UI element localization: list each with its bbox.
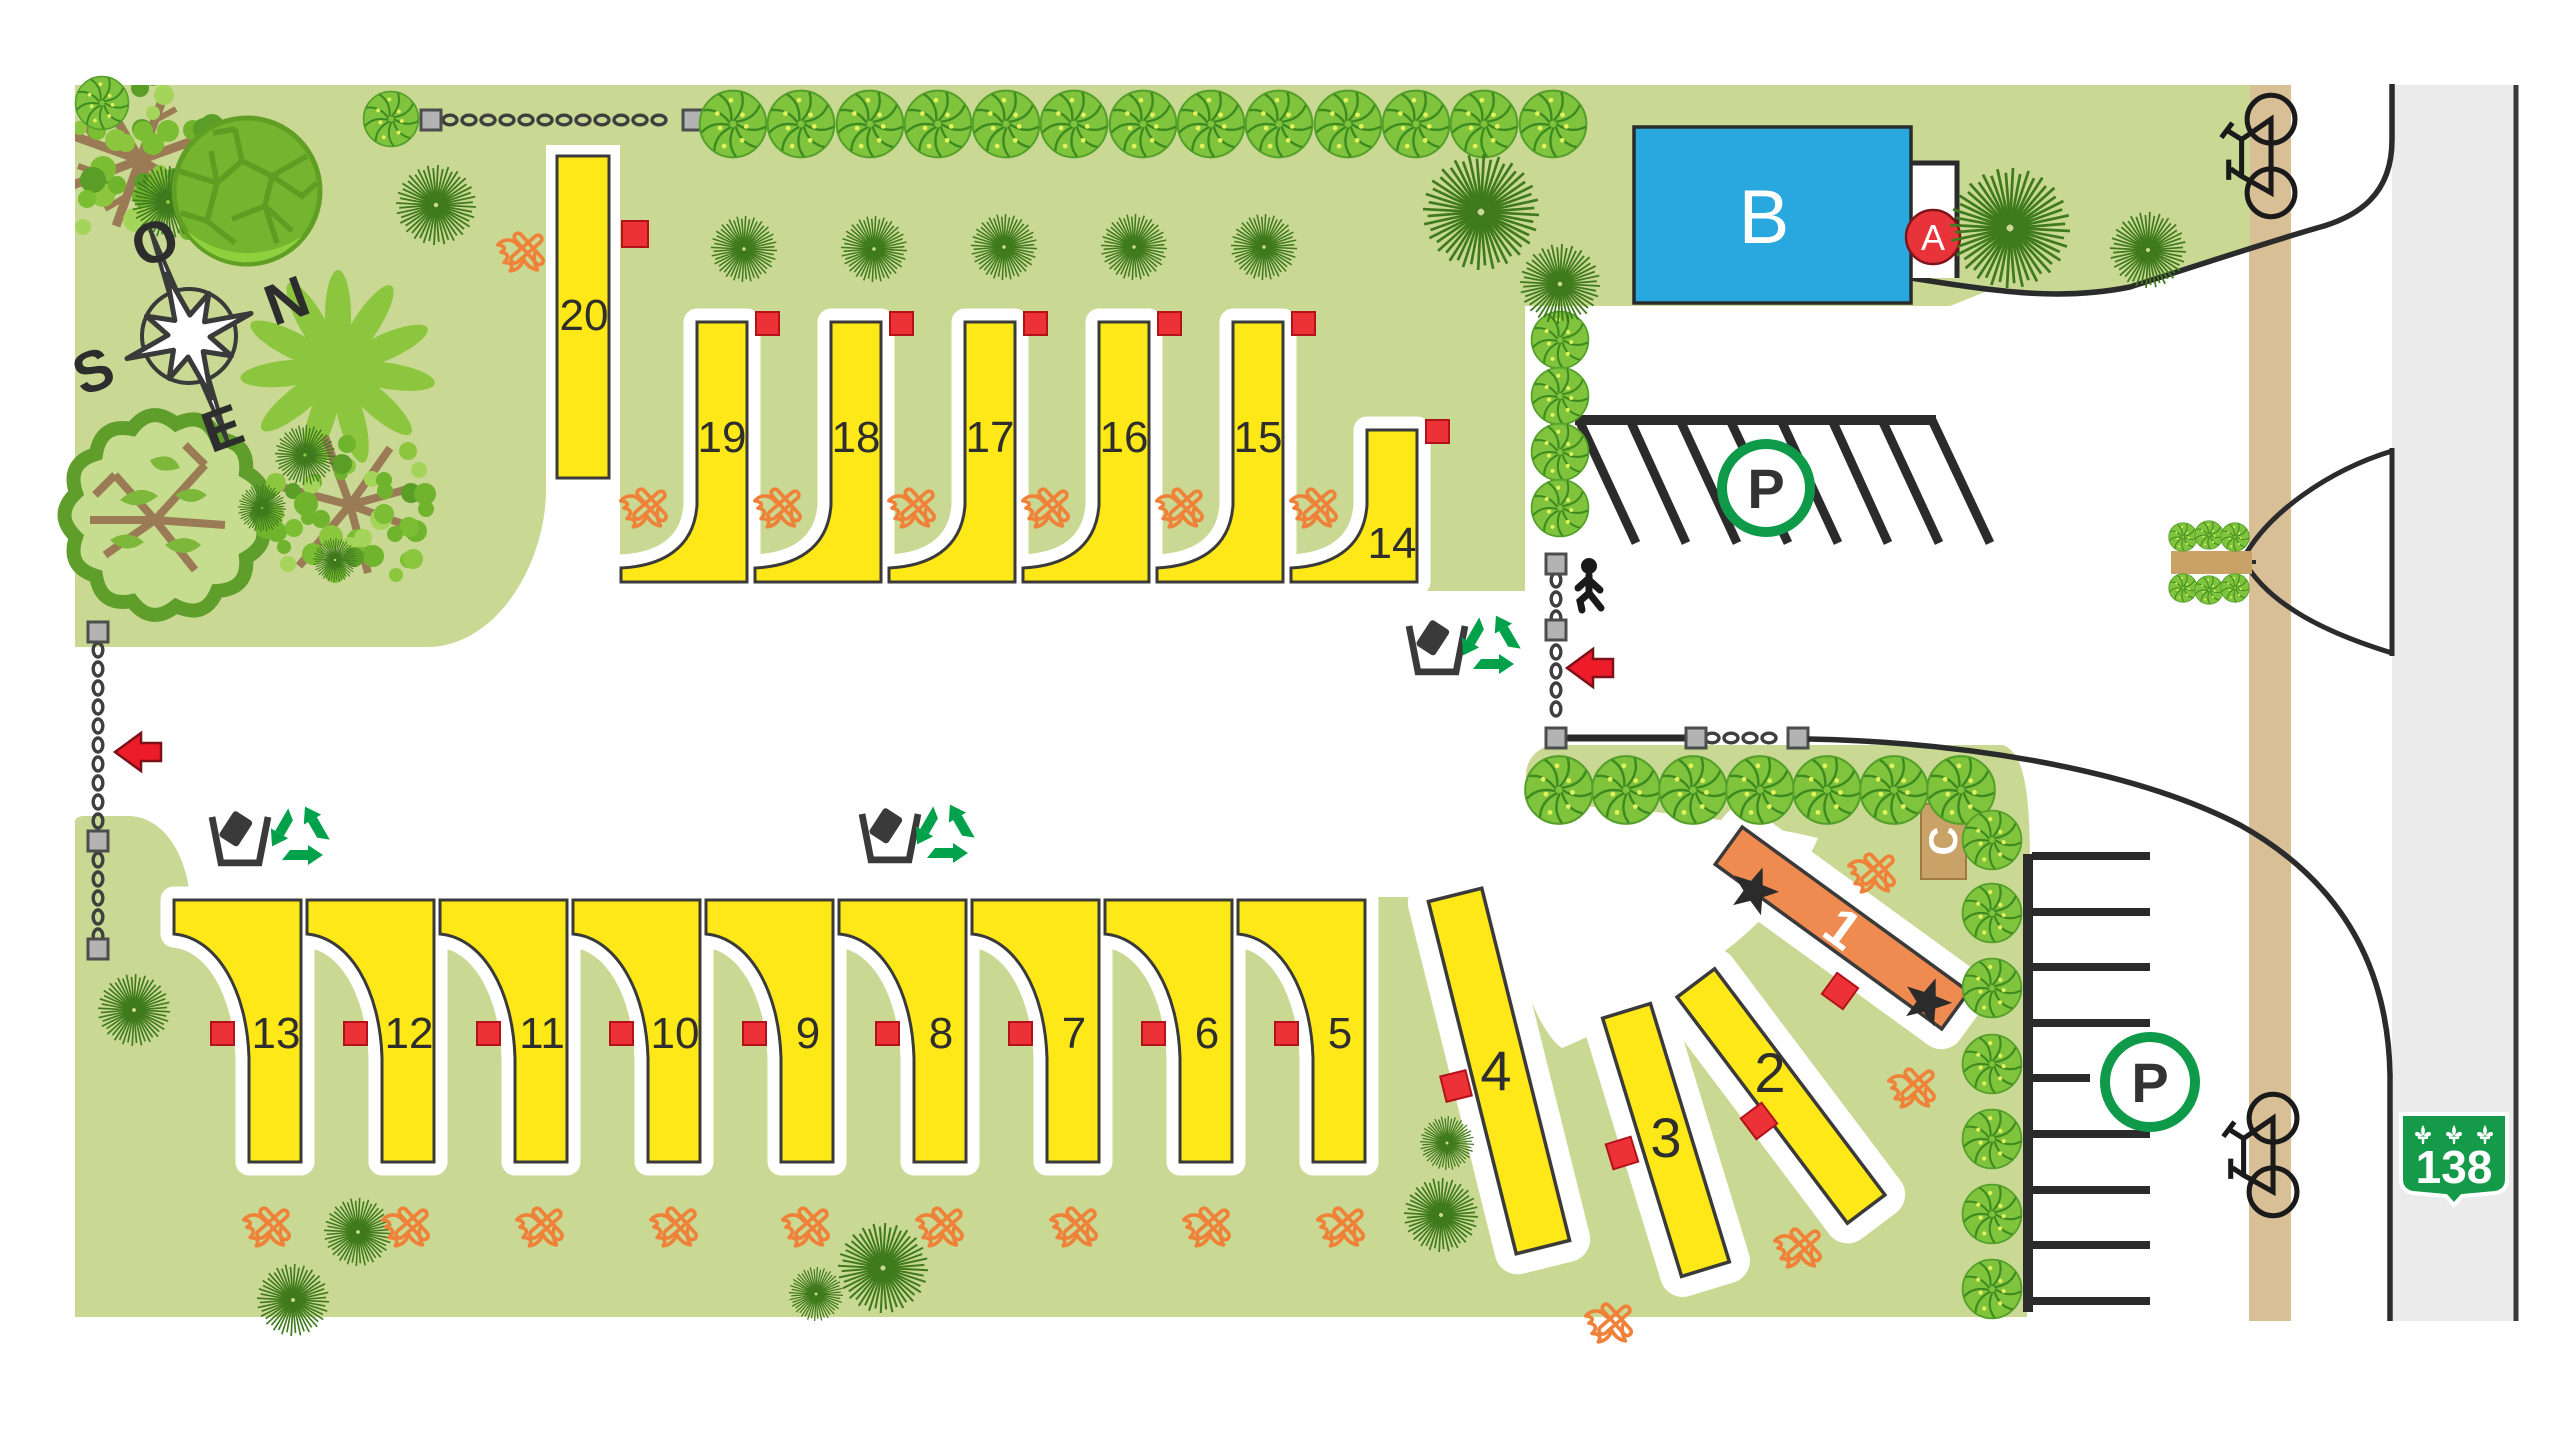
svg-text:B: B bbox=[1739, 175, 1790, 260]
svg-text:2: 2 bbox=[1754, 1041, 1785, 1104]
svg-text:14: 14 bbox=[1368, 519, 1417, 568]
svg-text:20: 20 bbox=[560, 291, 609, 340]
svg-text:13: 13 bbox=[252, 1009, 301, 1058]
svg-text:12: 12 bbox=[385, 1009, 434, 1058]
svg-text:138: 138 bbox=[2416, 1141, 2493, 1193]
svg-text:6: 6 bbox=[1195, 1009, 1219, 1058]
svg-text:11: 11 bbox=[519, 1009, 565, 1058]
svg-text:9: 9 bbox=[796, 1009, 820, 1058]
svg-text:19: 19 bbox=[698, 413, 747, 462]
svg-text:15: 15 bbox=[1234, 413, 1283, 462]
svg-text:8: 8 bbox=[929, 1009, 953, 1058]
svg-text:3: 3 bbox=[1650, 1106, 1681, 1169]
svg-text:18: 18 bbox=[832, 413, 881, 462]
svg-text:C: C bbox=[1922, 827, 1966, 856]
svg-text:16: 16 bbox=[1100, 413, 1149, 462]
svg-text:17: 17 bbox=[966, 413, 1015, 462]
svg-text:P: P bbox=[2131, 1051, 2168, 1114]
svg-text:4: 4 bbox=[1480, 1039, 1511, 1102]
svg-text:A: A bbox=[1921, 217, 1945, 258]
svg-text:5: 5 bbox=[1328, 1009, 1352, 1058]
svg-text:10: 10 bbox=[651, 1009, 700, 1058]
svg-text:P: P bbox=[1747, 457, 1784, 520]
svg-text:7: 7 bbox=[1062, 1009, 1086, 1058]
